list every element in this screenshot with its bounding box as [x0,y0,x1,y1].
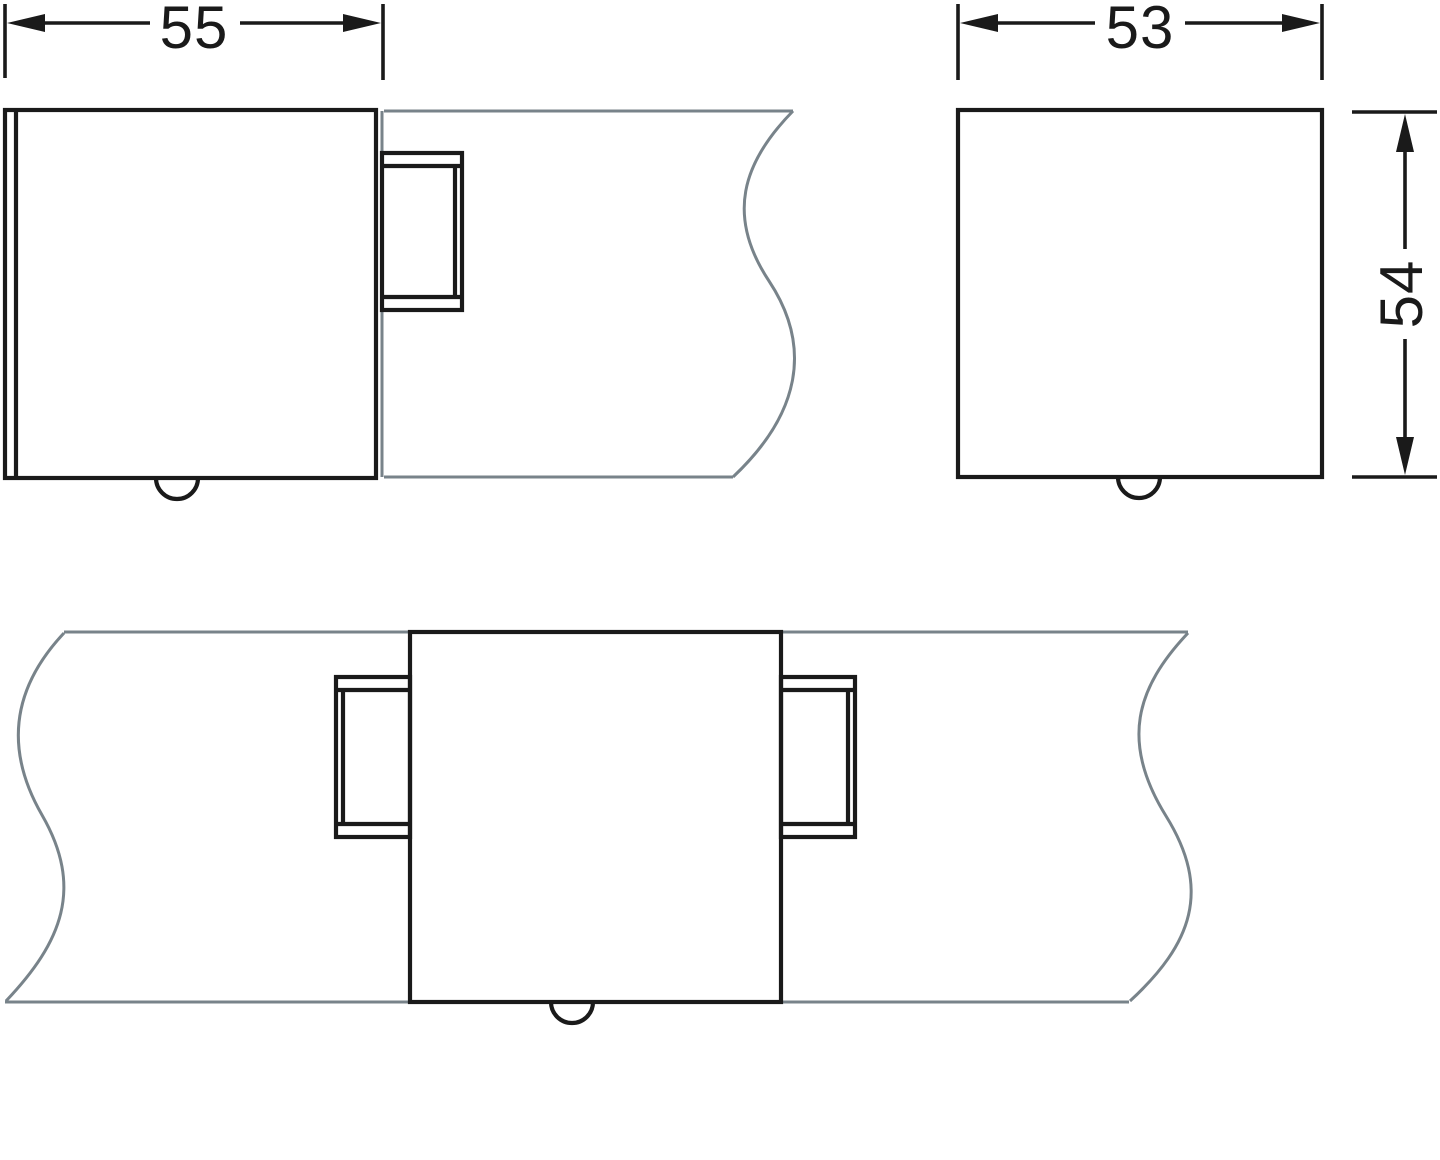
dimension-height-54: 54 [1352,112,1437,477]
dimension-label-55: 55 [160,0,229,61]
clamp-plate-outline [382,153,462,310]
clamp-plate-side [382,153,462,310]
arrowhead-right-icon [343,14,381,32]
clamp-plate-right [781,677,855,837]
arrowhead-up-icon [1396,114,1414,152]
front-view: 53 54 [958,0,1437,498]
glass-break-wave-right [1130,633,1191,1001]
arrowhead-left-icon [960,14,998,32]
arrowhead-left-icon [7,14,45,32]
clamp-plate-outline [336,677,410,837]
glass-break-wave [733,111,794,477]
glass-break-wave-left [6,633,64,1001]
arrowhead-down-icon [1396,437,1414,475]
clamp-body-front [958,110,1322,498]
technical-drawing: 55 53 54 [0,0,1440,1160]
clamp-body-side [5,110,376,499]
dimension-width-55: 55 [5,0,383,80]
clamp-body-plan [410,632,781,1023]
dimension-width-53: 53 [958,0,1322,80]
set-screw-bump [1118,477,1160,498]
plan-view [5,632,1191,1023]
set-screw-bump [551,1002,593,1023]
body-outline [410,632,781,1002]
set-screw-bump [156,478,198,499]
dimension-label-53: 53 [1106,0,1175,61]
body-outline [5,110,376,478]
clamp-plate-outline [781,677,855,837]
body-outline [958,110,1322,477]
side-view: 55 [5,0,794,499]
drawing-canvas: 55 53 54 [0,0,1440,1160]
arrowhead-right-icon [1282,14,1320,32]
dimension-label-54: 54 [1368,260,1435,329]
clamp-plate-left [336,677,410,837]
